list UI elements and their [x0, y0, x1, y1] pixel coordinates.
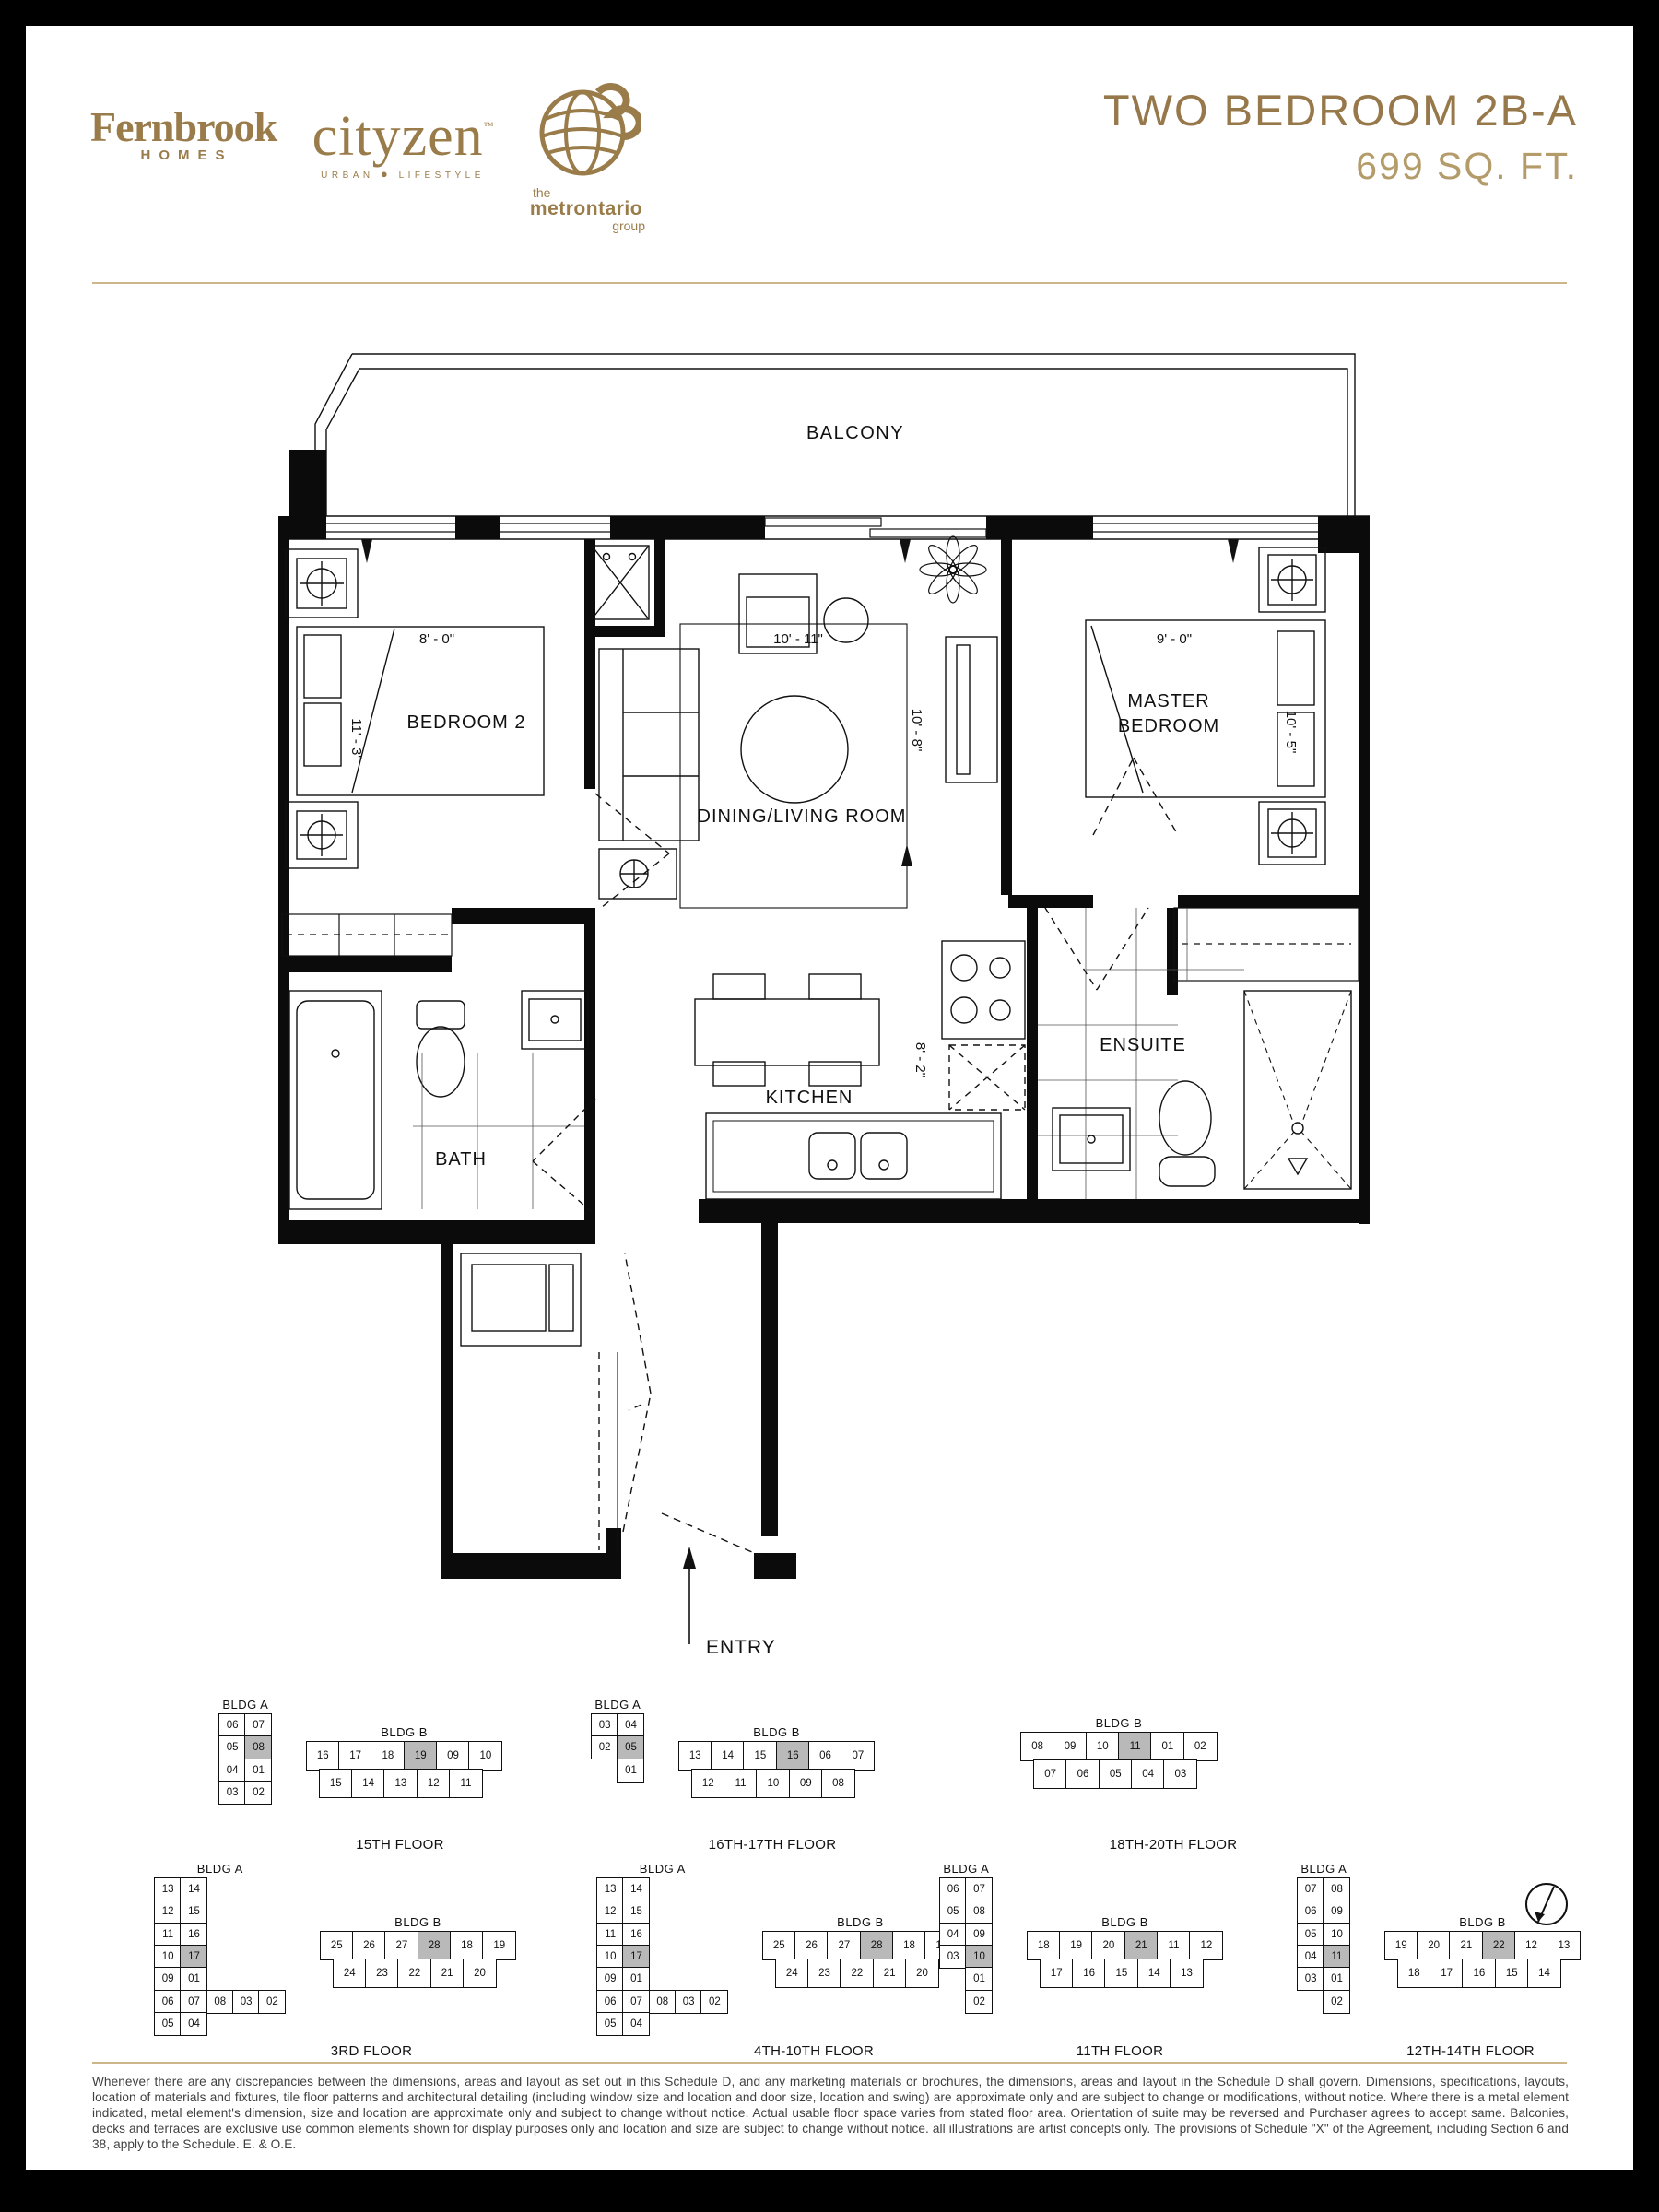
metrontario-group: group — [512, 219, 645, 232]
keyplan-unit-13: 13 — [1170, 1959, 1204, 1988]
bldg-a-label: BLDG A — [592, 1698, 644, 1712]
keyplan-unit-22: 22 — [397, 1959, 431, 1988]
keyplan-unit-25: 25 — [762, 1931, 796, 1960]
bldg-b-label: BLDG B — [679, 1725, 875, 1739]
page-frame-top — [0, 0, 1659, 26]
keyplan-unit-22: 22 — [1482, 1931, 1516, 1960]
compass-icon — [1523, 1880, 1571, 1928]
keyplan-unit-09: 09 — [965, 1923, 993, 1947]
bldg-b-label: BLDG B — [1028, 1915, 1223, 1929]
keyplan-unit-01: 01 — [1150, 1732, 1184, 1761]
keyplan-unit-05: 05 — [154, 2012, 182, 2036]
bldg-b-label: BLDG B — [307, 1725, 502, 1739]
keyplan-unit-06: 06 — [218, 1713, 246, 1737]
keyplan-unit-14: 14 — [351, 1769, 385, 1798]
keyplan-unit-24: 24 — [775, 1959, 809, 1988]
keyplan-unit-20: 20 — [1091, 1931, 1125, 1960]
keyplan-unit-01: 01 — [244, 1759, 272, 1783]
keyplan-bldg-a: BLDG A1314121511161017090106070803020504 — [597, 1862, 728, 2035]
keyplan-unit-16: 16 — [1462, 1959, 1496, 1988]
keyplan-unit-10: 10 — [468, 1741, 502, 1771]
bldg-b-label: BLDG B — [321, 1915, 516, 1929]
dim-master-depth: 10' - 5" — [1283, 711, 1299, 754]
keyplan-unit-01: 01 — [622, 1967, 650, 1991]
page-frame-left — [0, 0, 26, 2212]
keyplan-unit-07: 07 — [841, 1741, 875, 1771]
keyplan-unit-10: 10 — [1323, 1923, 1350, 1947]
header-divider — [92, 282, 1567, 284]
keyplan-unit-17: 17 — [1430, 1959, 1464, 1988]
keyplan-floor-label: 16TH-17TH FLOOR — [592, 1837, 953, 1853]
keyplan-unit-19: 19 — [482, 1931, 516, 1960]
keyplan-unit-27: 27 — [384, 1931, 418, 1960]
keyplan-unit-15: 15 — [180, 1900, 207, 1924]
keyplan-unit-06: 06 — [1297, 1900, 1324, 1924]
suite-title-block: TWO BEDROOM 2B-A 699 SQ. FT. — [877, 85, 1578, 188]
door-swings — [595, 758, 1178, 908]
bldg-a-label: BLDG A — [219, 1698, 272, 1712]
keyplan-unit-17: 17 — [180, 1945, 207, 1969]
keyplan-bldg-b: BLDG B1617181909101514131211 — [307, 1725, 502, 1798]
keyplan-bldg-b: BLDG B0809101101020706050403 — [1021, 1716, 1217, 1789]
bedroom2-label: BEDROOM 2 — [406, 712, 525, 733]
bldg-a-label: BLDG A — [155, 1862, 286, 1876]
keyplan-bldg-a: BLDG A06070508040903100102 — [940, 1862, 993, 2013]
keyplan-unit-19: 19 — [1384, 1931, 1418, 1960]
keyplan-unit-11: 11 — [1118, 1732, 1152, 1761]
keyplan-group-16th-17th-floor: BLDG A0304020501BLDG B131415160607121110… — [592, 1698, 953, 1853]
bedroom2-closet — [282, 914, 452, 956]
bath-fixtures — [289, 991, 595, 1215]
keyplan-unit-12: 12 — [154, 1900, 182, 1924]
keyplan-unit-15: 15 — [1495, 1959, 1529, 1988]
keyplan-unit-08: 08 — [965, 1900, 993, 1924]
keyplan-unit-08: 08 — [821, 1769, 855, 1798]
plant-icon — [920, 536, 986, 603]
keyplan-unit-06: 06 — [1065, 1759, 1100, 1789]
keyplan-unit-10: 10 — [756, 1769, 790, 1798]
page-frame-bottom — [0, 2170, 1659, 2212]
keyplan-unit-20: 20 — [905, 1959, 939, 1988]
keyplan-unit-11: 11 — [1323, 1945, 1350, 1969]
keyplan-unit-10: 10 — [154, 1945, 182, 1969]
keyplan-unit-03: 03 — [1163, 1759, 1197, 1789]
keyplan-floor-label: 12TH-14TH FLOOR — [1298, 2043, 1643, 2059]
keyplan-unit-05: 05 — [939, 1900, 967, 1924]
keyplan-unit-05: 05 — [617, 1735, 644, 1759]
kitchen-fixtures — [695, 941, 1025, 1199]
keyplan-unit-16: 16 — [306, 1741, 340, 1771]
keyplan-unit-17: 17 — [622, 1945, 650, 1969]
keyplan-bldg-b: BLDG B2526272818192423222120 — [321, 1915, 516, 1988]
ensuite-fixtures — [1038, 908, 1351, 1199]
keyplan-unit-19: 19 — [404, 1741, 438, 1771]
keyplan-unit-02: 02 — [1183, 1732, 1218, 1761]
cityzen-wordmark: cityzen™ — [306, 100, 500, 163]
bldg-a-label: BLDG A — [597, 1862, 728, 1876]
bldg-b-label: BLDG B — [1021, 1716, 1217, 1730]
keyplan-unit-18: 18 — [1397, 1959, 1431, 1988]
dim-living-width: 10' - 11" — [773, 631, 823, 647]
floorplan-brochure-page: Fernbrook HOMES cityzen™ URBAN ● LIFESTY… — [0, 0, 1659, 2212]
keyplan-unit-11: 11 — [596, 1923, 624, 1947]
keyplan-unit-17: 17 — [338, 1741, 372, 1771]
keyplan-spacer — [939, 1990, 967, 2014]
keyplan-unit-13: 13 — [596, 1877, 624, 1901]
entry-corridor — [461, 1253, 765, 1558]
keyplan-unit-14: 14 — [1137, 1959, 1171, 1988]
keyplan-unit-18: 18 — [450, 1931, 484, 1960]
keyplan-unit-05: 05 — [218, 1735, 246, 1759]
keyplan-unit-02: 02 — [258, 1990, 286, 2014]
keyplan-unit-14: 14 — [622, 1877, 650, 1901]
keyplan-unit-03: 03 — [218, 1781, 246, 1805]
keyplan-unit-22: 22 — [840, 1959, 874, 1988]
keyplan-unit-15: 15 — [743, 1741, 777, 1771]
suite-title: TWO BEDROOM 2B-A — [877, 85, 1578, 135]
bldg-a-label: BLDG A — [940, 1862, 993, 1876]
keyplan-unit-05: 05 — [596, 2012, 624, 2036]
keyplan-unit-07: 07 — [1297, 1877, 1324, 1901]
keyplan-unit-03: 03 — [1297, 1967, 1324, 1991]
keyplan-unit-09: 09 — [1053, 1732, 1087, 1761]
keyplan-unit-07: 07 — [965, 1877, 993, 1901]
keyplan-unit-16: 16 — [180, 1923, 207, 1947]
keyplan-unit-05: 05 — [1297, 1923, 1324, 1947]
keyplan-unit-26: 26 — [794, 1931, 829, 1960]
keyplan-unit-01: 01 — [180, 1967, 207, 1991]
keyplan-unit-02: 02 — [965, 1990, 993, 2014]
keyplan-floor-label: 11TH FLOOR — [940, 2043, 1300, 2059]
keyplan-unit-04: 04 — [939, 1923, 967, 1947]
dim-bedroom2-depth: 11' - 3" — [348, 718, 364, 759]
keyplan-unit-26: 26 — [352, 1931, 386, 1960]
keyplan-unit-09: 09 — [436, 1741, 470, 1771]
keyplan-unit-02: 02 — [1323, 1990, 1350, 2014]
keyplan-unit-04: 04 — [617, 1713, 644, 1737]
fernbrook-homes-logo: Fernbrook HOMES — [90, 109, 275, 163]
keyplan-unit-12: 12 — [1514, 1931, 1548, 1960]
keyplan-unit-04: 04 — [180, 2012, 207, 2036]
keyplan-unit-04: 04 — [1131, 1759, 1165, 1789]
keyplan-unit-17: 17 — [1040, 1959, 1074, 1988]
bldg-a-label: BLDG A — [1298, 1862, 1350, 1876]
keyplan-unit-28: 28 — [860, 1931, 894, 1960]
keyplan-unit-01: 01 — [965, 1967, 993, 1991]
keyplan-floor-label: 3RD FLOOR — [155, 2043, 588, 2059]
keyplan-unit-03: 03 — [675, 1990, 702, 2014]
keyplan-unit-01: 01 — [1323, 1967, 1350, 1991]
keyplan-unit-14: 14 — [180, 1877, 207, 1901]
fernbrook-wordmark: Fernbrook — [90, 109, 275, 146]
keyplan-group-15th-floor: BLDG A0607050804010302BLDG B161718190910… — [219, 1698, 581, 1853]
keyplan-unit-04: 04 — [1297, 1945, 1324, 1969]
keyplan-floor-label: 15TH FLOOR — [219, 1837, 581, 1853]
keyplan-unit-07: 07 — [180, 1990, 207, 2014]
keyplan-floor-label: 18TH-20TH FLOOR — [1021, 1837, 1325, 1853]
keyplan-bldg-b: BLDG B1819202111121716151413 — [1028, 1915, 1223, 1988]
suite-area: 699 SQ. FT. — [877, 145, 1578, 188]
keyplan-bldg-b: BLDG B2526272818192423222120 — [763, 1915, 959, 1988]
keyplan-unit-08: 08 — [244, 1735, 272, 1759]
metrontario-name: metrontario — [512, 199, 660, 219]
keyplan-unit-14: 14 — [711, 1741, 745, 1771]
bedroom2-furniture — [286, 549, 544, 868]
keyplan-unit-13: 13 — [154, 1877, 182, 1901]
page-frame-right — [1633, 0, 1659, 2212]
keyplan-unit-21: 21 — [1124, 1931, 1159, 1960]
dim-bedroom2-width: 8' - 0" — [419, 631, 454, 647]
floor-plan-svg: BALCONY BEDROOM 2 DINING/LIVING ROOM MAS… — [256, 324, 1399, 1670]
keyplan-unit-13: 13 — [678, 1741, 712, 1771]
keyplan-unit-11: 11 — [449, 1769, 483, 1798]
keyplan-group-11th-floor: BLDG A06070508040903100102BLDG B18192021… — [940, 1862, 1300, 2059]
keyplan-unit-16: 16 — [622, 1923, 650, 1947]
keyplan-unit-12: 12 — [596, 1900, 624, 1924]
keyplan-unit-18: 18 — [892, 1931, 926, 1960]
keyplan-unit-25: 25 — [320, 1931, 354, 1960]
dim-master-width: 9' - 0" — [1157, 631, 1192, 647]
keyplan-unit-19: 19 — [1059, 1931, 1093, 1960]
bath-label: BATH — [435, 1149, 487, 1170]
dim-kitchen-depth: 8' - 2" — [912, 1042, 928, 1077]
ensuite-label: ENSUITE — [1100, 1035, 1186, 1055]
keyplan-unit-01: 01 — [617, 1759, 644, 1783]
keyplan-bldg-a: BLDG A0708060905100411030102 — [1298, 1862, 1350, 2013]
keyplan-unit-12: 12 — [417, 1769, 451, 1798]
keyplan-unit-13: 13 — [383, 1769, 418, 1798]
keyplan-unit-06: 06 — [154, 1990, 182, 2014]
cityzen-logo: cityzen™ URBAN ● LIFESTYLE — [306, 100, 500, 181]
keyplan-bldg-b: BLDG B1314151606071211100908 — [679, 1725, 875, 1798]
keyplan-unit-07: 07 — [1033, 1759, 1067, 1789]
keyplan-unit-09: 09 — [1323, 1900, 1350, 1924]
keyplan-unit-03: 03 — [591, 1713, 618, 1737]
keyplan-unit-16: 16 — [1072, 1959, 1106, 1988]
keyplan-unit-05: 05 — [1099, 1759, 1133, 1789]
keyplan-group-18th-20th-floor: BLDG B080910110102070605040318TH-20TH FL… — [1021, 1698, 1325, 1853]
keyplan-unit-28: 28 — [418, 1931, 452, 1960]
keyplan-unit-15: 15 — [319, 1769, 353, 1798]
keyplan-unit-04: 04 — [622, 2012, 650, 2036]
dim-living-depth: 10' - 8" — [909, 709, 924, 752]
keyplan-unit-12: 12 — [691, 1769, 725, 1798]
keyplan-unit-06: 06 — [939, 1877, 967, 1901]
keyplan-unit-08: 08 — [206, 1990, 234, 2014]
footer-divider — [92, 2062, 1567, 2064]
cityzen-tagline: URBAN ● LIFESTYLE — [306, 167, 500, 181]
bldg-b-label: BLDG B — [763, 1915, 959, 1929]
keyplan-spacer — [591, 1759, 618, 1783]
keyplan-unit-24: 24 — [333, 1959, 367, 1988]
keyplan-unit-09: 09 — [596, 1967, 624, 1991]
keyplan-unit-15: 15 — [1104, 1959, 1138, 1988]
keyplan-unit-16: 16 — [776, 1741, 810, 1771]
keyplan-unit-15: 15 — [622, 1900, 650, 1924]
keyplan-unit-04: 04 — [218, 1759, 246, 1783]
keyplan-unit-08: 08 — [1323, 1877, 1350, 1901]
keyplan-unit-08: 08 — [649, 1990, 677, 2014]
master-label-2: BEDROOM — [1118, 716, 1219, 736]
keyplan-unit-11: 11 — [724, 1769, 758, 1798]
keyplan-unit-23: 23 — [365, 1959, 399, 1988]
keyplan-bldg-a: BLDG A0304020501 — [592, 1698, 644, 1782]
keyplan-unit-14: 14 — [1527, 1959, 1561, 1988]
keyplan-unit-27: 27 — [827, 1931, 861, 1960]
kitchen-label: KITCHEN — [766, 1088, 853, 1108]
laundry-closet — [592, 546, 649, 619]
living-label: DINING/LIVING ROOM — [698, 806, 907, 827]
keyplan-unit-03: 03 — [939, 1945, 967, 1969]
keyplan-unit-07: 07 — [622, 1990, 650, 2014]
keyplan-unit-07: 07 — [244, 1713, 272, 1737]
keyplan-unit-12: 12 — [1189, 1931, 1223, 1960]
keyplan-unit-09: 09 — [789, 1769, 823, 1798]
keyplan-unit-20: 20 — [1417, 1931, 1451, 1960]
keyplan-unit-02: 02 — [244, 1781, 272, 1805]
keyplan-unit-02: 02 — [591, 1735, 618, 1759]
master-label-1: MASTER — [1127, 691, 1209, 712]
entry-arrow — [683, 1547, 696, 1644]
keyplan-unit-10: 10 — [1086, 1732, 1120, 1761]
entry-label: ENTRY — [706, 1637, 776, 1658]
keyplan-unit-20: 20 — [463, 1959, 497, 1988]
keyplan-unit-21: 21 — [873, 1959, 907, 1988]
keyplan-unit-10: 10 — [596, 1945, 624, 1969]
keyplan-unit-08: 08 — [1020, 1732, 1054, 1761]
keyplan-unit-23: 23 — [807, 1959, 841, 1988]
keyplan-spacer — [939, 1967, 967, 1991]
balcony-label: BALCONY — [806, 423, 904, 443]
keyplan-group-3rd-floor: BLDG A1314121511161017090106070803020504… — [155, 1862, 588, 2059]
keyplan-spacer — [1297, 1990, 1324, 2014]
keyplan-unit-21: 21 — [1449, 1931, 1483, 1960]
keyplan-group-12th-14th-floor: BLDG A0708060905100411030102BLDG B192021… — [1298, 1862, 1643, 2059]
keyplan-unit-21: 21 — [430, 1959, 465, 1988]
keyplan-unit-13: 13 — [1547, 1931, 1581, 1960]
keyplan-unit-11: 11 — [154, 1923, 182, 1947]
keyplan-unit-02: 02 — [700, 1990, 728, 2014]
keyplan-unit-18: 18 — [1027, 1931, 1061, 1960]
keyplan-unit-06: 06 — [808, 1741, 842, 1771]
keyplan-unit-18: 18 — [371, 1741, 405, 1771]
keyplan-unit-03: 03 — [232, 1990, 260, 2014]
keyplan-unit-10: 10 — [965, 1945, 993, 1969]
metrontario-logo: the metrontario group — [512, 79, 660, 232]
keyplan-bldg-a: BLDG A1314121511161017090106070803020504 — [155, 1862, 286, 2035]
globe-icon — [532, 79, 641, 182]
legal-disclaimer: Whenever there are any discrepancies bet… — [92, 2074, 1569, 2152]
keyplan-bldg-a: BLDG A0607050804010302 — [219, 1698, 272, 1804]
keyplan-unit-11: 11 — [1157, 1931, 1191, 1960]
keyplan-unit-09: 09 — [154, 1967, 182, 1991]
keyplan-unit-06: 06 — [596, 1990, 624, 2014]
